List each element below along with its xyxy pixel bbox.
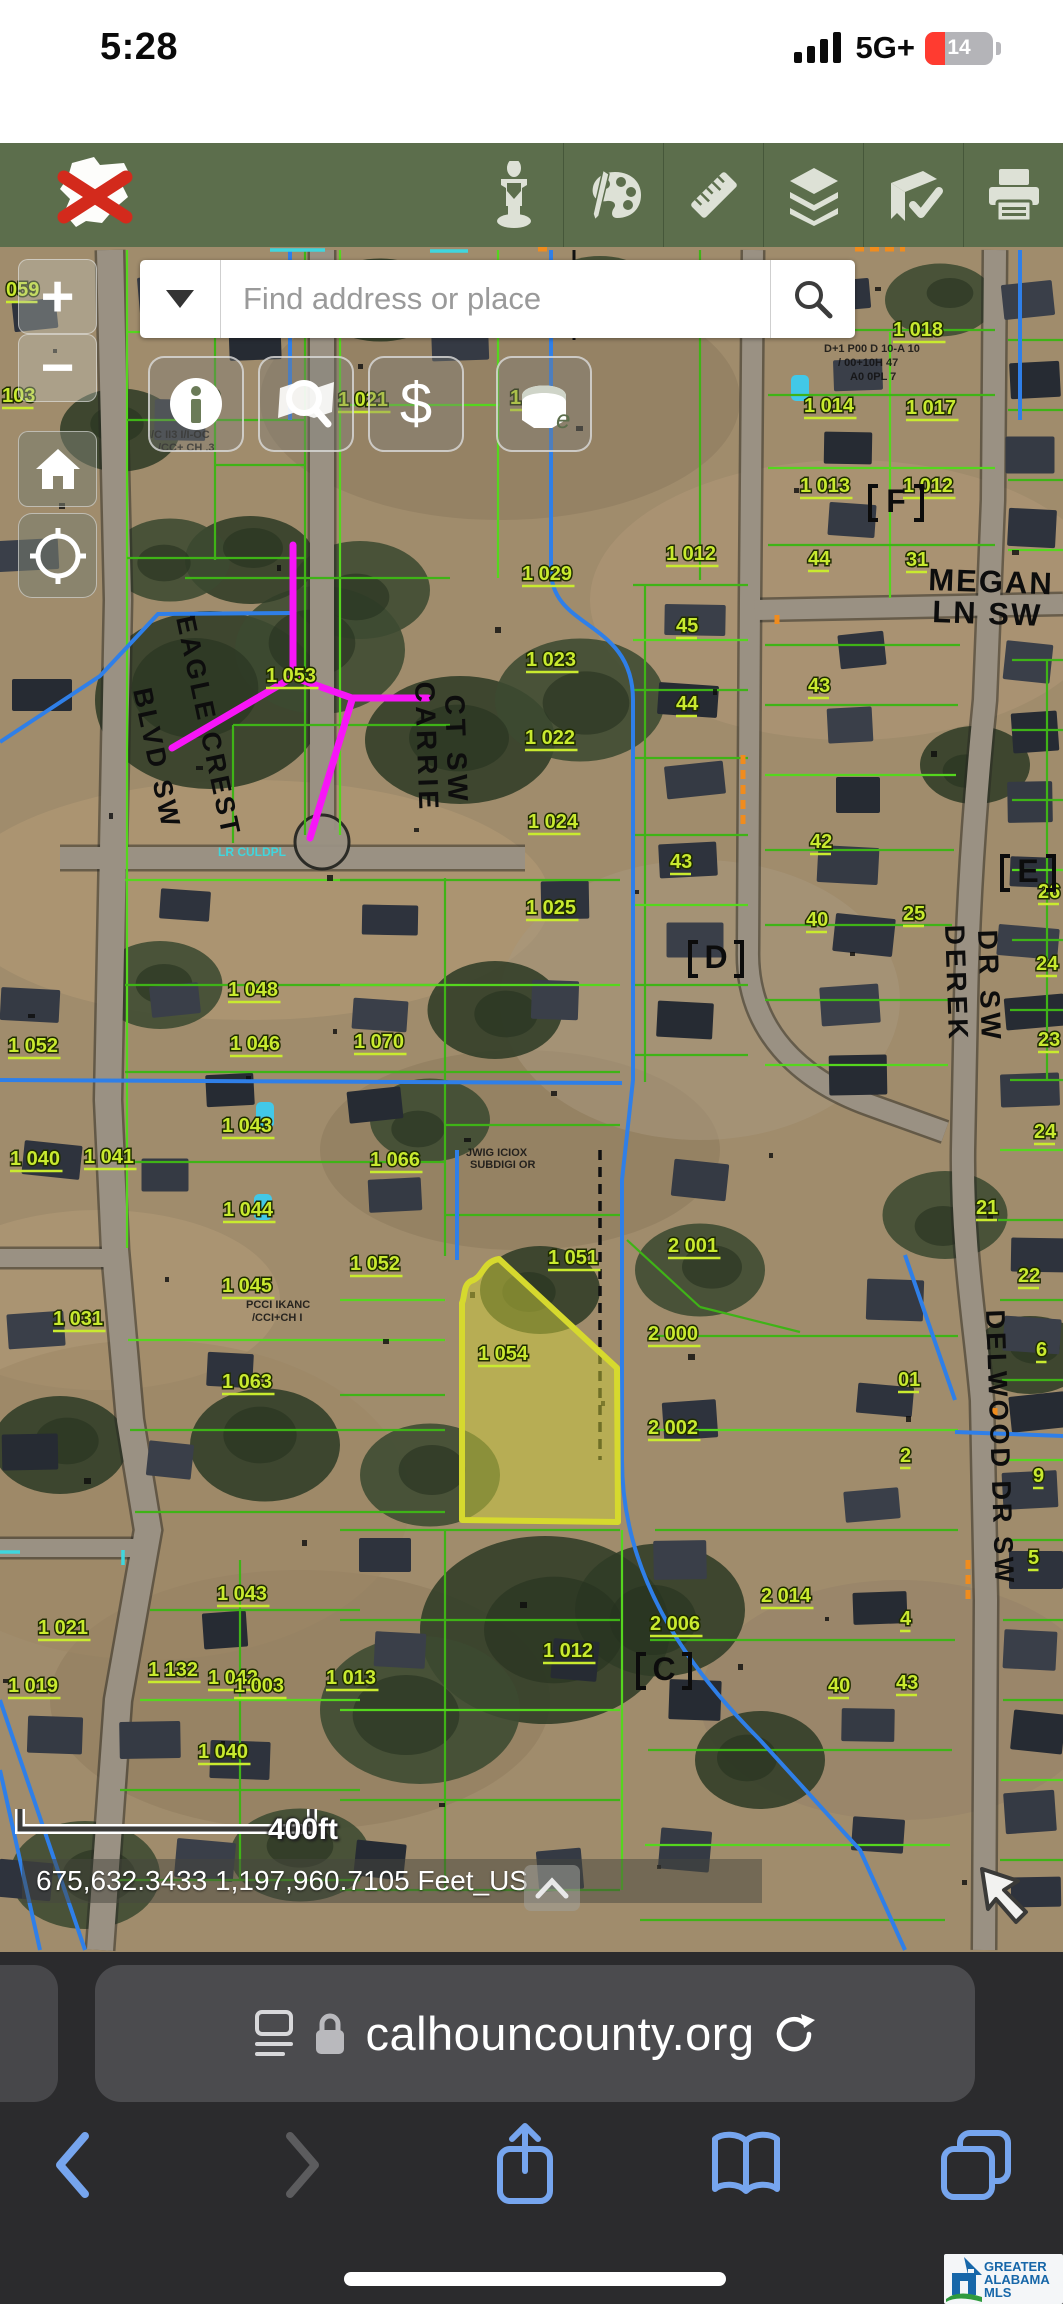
svg-text:1 052: 1 052 <box>350 1253 400 1275</box>
mls-line3: MLS <box>984 2286 1050 2299</box>
search-bar <box>140 260 855 338</box>
mls-line1: GREATER <box>984 2260 1050 2273</box>
svg-text:1 040: 1 040 <box>10 1148 60 1170</box>
clock: 5:28 <box>100 26 178 69</box>
tabs-button[interactable] <box>926 2110 1026 2220</box>
safari-bottom-bar: calhouncounty.org <box>0 1952 1063 2304</box>
svg-text:1 013: 1 013 <box>800 475 850 497</box>
home-button[interactable] <box>18 431 97 507</box>
svg-text:F: F <box>886 483 906 519</box>
svg-text:D+1 P00 D 10-A 10: D+1 P00 D 10-A 10 <box>824 343 920 355</box>
svg-text:22: 22 <box>1018 1265 1040 1287</box>
gis-toolbar <box>0 143 1063 247</box>
coordinate-readout: 675,632.3433 1,197,960.7105 Feet_US <box>22 1859 762 1903</box>
svg-text:44: 44 <box>808 548 831 570</box>
share-button[interactable] <box>475 2110 575 2220</box>
svg-text:1 023: 1 023 <box>526 649 576 671</box>
svg-text:E: E <box>1017 853 1038 889</box>
county-logo-close-icon[interactable] <box>42 151 152 239</box>
svg-text:9: 9 <box>1033 1465 1044 1487</box>
chevron-down-icon <box>166 290 194 308</box>
svg-text:42: 42 <box>810 831 832 853</box>
chevron-up-icon <box>535 1877 569 1899</box>
svg-text:1 054: 1 054 <box>478 1343 529 1365</box>
home-indicator[interactable] <box>344 2272 726 2286</box>
ruler-icon[interactable] <box>663 143 763 247</box>
svg-text:PCCI IKANC: PCCI IKANC <box>246 1299 310 1311</box>
home-icon <box>34 447 82 491</box>
svg-text:43: 43 <box>670 851 692 873</box>
bookmarks-button[interactable] <box>696 2110 796 2220</box>
print-icon[interactable] <box>963 143 1063 247</box>
svg-text:1 046: 1 046 <box>230 1033 280 1055</box>
svg-text:2 002: 2 002 <box>648 1417 698 1439</box>
parcel-map[interactable]: EAGLE CRESTBLVD SWCARRIECT SWMEGANLN SWD… <box>0 247 1063 1952</box>
svg-text:1 013: 1 013 <box>326 1667 376 1689</box>
dollar-icon: $ <box>396 373 436 435</box>
svg-text:DR SW: DR SW <box>972 929 1007 1043</box>
mls-line2: ALABAMA <box>984 2273 1050 2286</box>
svg-text:43: 43 <box>896 1672 918 1694</box>
scale-label: 400ft <box>268 1813 338 1847</box>
svg-text:1 021: 1 021 <box>38 1617 88 1639</box>
svg-text:$: $ <box>400 373 432 435</box>
tabs-icon <box>940 2129 1012 2201</box>
svg-text:D: D <box>704 939 727 975</box>
network-type: 5G+ <box>856 30 915 66</box>
svg-text:2 000: 2 000 <box>648 1323 698 1345</box>
svg-text:2 001: 2 001 <box>668 1235 718 1257</box>
deed-book-icon: e <box>512 374 576 434</box>
svg-text:1 040: 1 040 <box>198 1741 248 1763</box>
svg-text:1 045: 1 045 <box>222 1275 272 1297</box>
svg-text:1 024: 1 024 <box>528 811 579 833</box>
svg-text:1 041: 1 041 <box>84 1146 134 1168</box>
svg-text:6: 6 <box>1036 1339 1047 1361</box>
adjacent-tab-edge[interactable] <box>0 1965 58 2102</box>
svg-text:1 029: 1 029 <box>522 563 572 585</box>
status-bar: 5:28 5G+ 14 <box>0 0 1063 143</box>
expand-attribution-button[interactable] <box>524 1865 580 1911</box>
svg-text:1 031: 1 031 <box>53 1308 103 1330</box>
svg-text:31: 31 <box>906 549 928 571</box>
locate-button[interactable] <box>18 513 97 598</box>
svg-text:1 043: 1 043 <box>222 1115 272 1137</box>
back-button[interactable] <box>22 2110 122 2220</box>
safari-nav-row <box>0 2110 1063 2230</box>
search-input[interactable] <box>221 260 770 338</box>
reader-view-icon[interactable] <box>253 2008 295 2060</box>
deed-record-button[interactable]: e <box>496 356 592 452</box>
svg-text:44: 44 <box>676 693 699 715</box>
svg-text:e: e <box>556 404 570 434</box>
cursor-arrow-icon <box>978 1865 1040 1936</box>
svg-text:1 053: 1 053 <box>266 665 316 687</box>
svg-text:1 051: 1 051 <box>548 1247 598 1269</box>
mls-logo: GREATER ALABAMA MLS <box>944 2254 1063 2304</box>
svg-text:1 017: 1 017 <box>906 397 956 419</box>
svg-text:2: 2 <box>900 1445 911 1467</box>
search-options-dropdown[interactable] <box>140 260 221 338</box>
book-icon <box>708 2131 784 2199</box>
bookmark-check-icon[interactable] <box>863 143 963 247</box>
map-search-button[interactable] <box>258 356 354 452</box>
svg-text:DEREK: DEREK <box>939 924 974 1043</box>
refresh-icon[interactable] <box>773 2010 817 2058</box>
signal-strength-icon <box>794 30 846 66</box>
svg-text:1 012: 1 012 <box>903 475 953 497</box>
mls-house-icon <box>944 2255 984 2303</box>
svg-text:1 014: 1 014 <box>804 395 855 417</box>
svg-text:40: 40 <box>828 1675 850 1697</box>
map-magnifier-icon <box>274 374 338 434</box>
svg-text:21: 21 <box>976 1197 998 1219</box>
svg-text:5: 5 <box>1028 1547 1039 1569</box>
svg-text:LR CULDPL: LR CULDPL <box>218 845 286 859</box>
measure-person-icon[interactable] <box>464 143 563 247</box>
svg-text:1 018: 1 018 <box>893 319 943 341</box>
svg-text:LN SW: LN SW <box>932 594 1043 633</box>
svg-text:25: 25 <box>903 903 925 925</box>
battery-percent: 14 <box>925 32 993 65</box>
search-button[interactable] <box>770 260 855 338</box>
svg-text:/ 00+10H 47: / 00+10H 47 <box>838 357 898 369</box>
search-icon <box>791 277 835 321</box>
svg-text:JWIG ICIOX: JWIG ICIOX <box>466 1147 528 1159</box>
svg-text:C: C <box>652 1651 675 1687</box>
svg-text:1 044: 1 044 <box>223 1199 274 1221</box>
svg-text:2 006: 2 006 <box>650 1613 700 1635</box>
svg-text:CT SW: CT SW <box>439 694 474 805</box>
svg-text:/CCI+CH I: /CCI+CH I <box>252 1312 302 1324</box>
svg-text:45: 45 <box>676 615 698 637</box>
zoom-out-button[interactable]: − <box>18 334 97 402</box>
map-viewport[interactable]: EAGLE CRESTBLVD SWCARRIECT SWMEGANLN SWD… <box>0 247 1063 1952</box>
svg-text:A0 0PL 7: A0 0PL 7 <box>850 371 896 383</box>
svg-text:24: 24 <box>1036 953 1059 975</box>
svg-text:1 048: 1 048 <box>228 979 278 1001</box>
svg-text:01: 01 <box>898 1369 920 1391</box>
url-bar[interactable]: calhouncounty.org <box>95 1965 975 2102</box>
svg-text:1 066: 1 066 <box>370 1149 420 1171</box>
svg-text:40: 40 <box>806 909 828 931</box>
share-icon <box>494 2123 556 2207</box>
svg-text:1 052: 1 052 <box>8 1035 58 1057</box>
svg-text:4: 4 <box>900 1608 912 1630</box>
identify-info-button[interactable] <box>148 356 244 452</box>
svg-text:24: 24 <box>1034 1121 1057 1143</box>
svg-text:1 070: 1 070 <box>354 1031 404 1053</box>
crosshair-icon <box>30 528 86 584</box>
draw-palette-icon[interactable] <box>563 143 663 247</box>
svg-text:23: 23 <box>1038 1029 1060 1051</box>
battery-icon: 14 <box>925 32 993 65</box>
svg-text:1 063: 1 063 <box>222 1371 272 1393</box>
svg-text:2 014: 2 014 <box>761 1585 812 1607</box>
battery-nub <box>996 42 1001 55</box>
lock-icon <box>313 2011 347 2057</box>
layers-icon[interactable] <box>763 143 863 247</box>
forward-button[interactable] <box>253 2110 353 2220</box>
url-text: calhouncounty.org <box>365 2006 754 2061</box>
svg-text:1 043: 1 043 <box>217 1583 267 1605</box>
tax-value-button[interactable]: $ <box>368 356 464 452</box>
svg-text:1 022: 1 022 <box>525 727 575 749</box>
zoom-in-button[interactable]: + <box>18 259 97 334</box>
svg-text:1 132: 1 132 <box>148 1659 198 1681</box>
svg-text:1 025: 1 025 <box>526 897 576 919</box>
svg-text:1 012: 1 012 <box>666 543 716 565</box>
svg-text:1 019: 1 019 <box>8 1675 58 1697</box>
coordinates-text: 675,632.3433 1,197,960.7105 Feet_US <box>22 1865 528 1897</box>
svg-text:1 003: 1 003 <box>234 1675 284 1697</box>
svg-text:1 012: 1 012 <box>543 1640 593 1662</box>
svg-text:43: 43 <box>808 675 830 697</box>
svg-text:SUBDIGI OR: SUBDIGI OR <box>470 1159 535 1171</box>
info-icon <box>167 375 225 433</box>
